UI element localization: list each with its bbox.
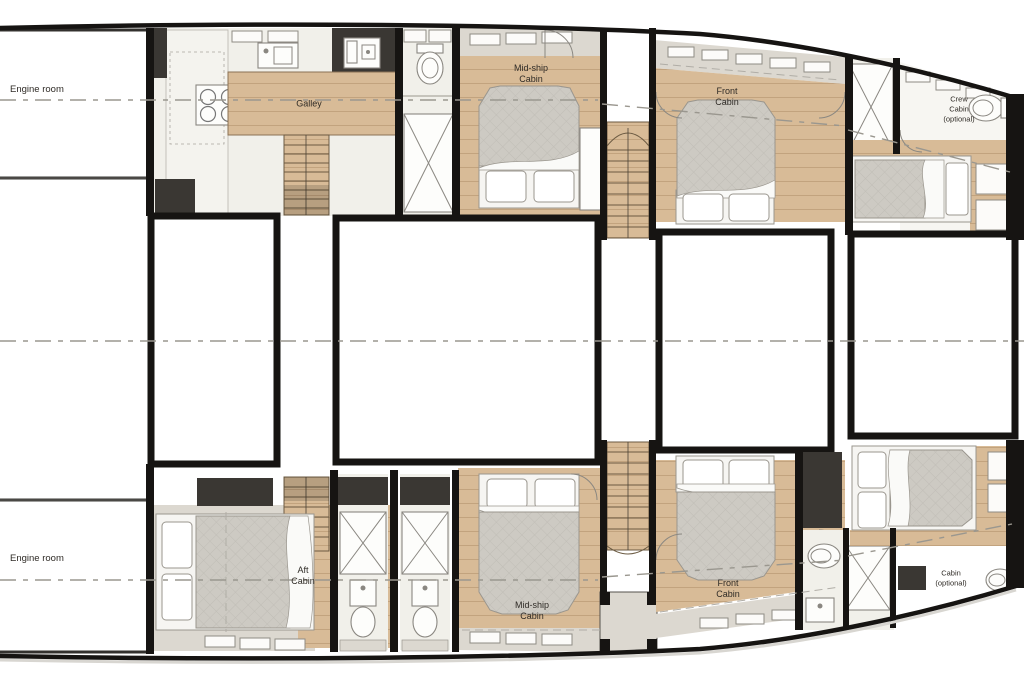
midship-cabin-port — [458, 28, 602, 216]
port-stairwell — [607, 122, 649, 238]
optional-cabin-vanity — [898, 566, 926, 590]
void-box-aft-port — [151, 216, 277, 464]
shower — [404, 114, 453, 212]
aft-bed — [156, 512, 314, 632]
midship-port-bathroom — [402, 28, 454, 216]
aft-bathroom — [338, 474, 388, 651]
toilet — [417, 44, 443, 84]
bow-port-area — [848, 58, 1016, 235]
floor-plan-drawing — [0, 0, 1024, 680]
midship-starboard-bed — [479, 474, 579, 614]
engine-room-starboard-outline — [0, 500, 148, 652]
midship-cabin-starboard — [458, 468, 602, 652]
bow-shower — [849, 64, 893, 150]
bridgedeck-voids — [151, 216, 1015, 464]
midship-starboard-bathroom — [400, 474, 450, 651]
floor-plan: Engine room Galley Mid-ship Cabin Front … — [0, 0, 1024, 680]
front-cabin-port — [654, 40, 845, 224]
front-starboard-wardrobe — [798, 452, 842, 528]
midship-port-bed — [479, 86, 579, 208]
midship-port-locker — [580, 128, 601, 210]
front-port-bed — [676, 100, 775, 224]
crew-bed — [851, 156, 971, 222]
optional-cabin-bed — [852, 446, 976, 530]
starboard-stairwell — [600, 442, 657, 652]
crew-toilet — [969, 95, 1010, 121]
galley-prep-sink — [258, 43, 298, 68]
galley-island — [228, 72, 397, 135]
void-box-bow — [851, 234, 1015, 436]
galley-stairs — [284, 135, 329, 215]
front-starboard-bed — [676, 456, 775, 580]
galley-sink — [344, 38, 380, 68]
void-box-center — [336, 218, 598, 462]
engine-room-port-outline — [0, 30, 148, 178]
bow-starboard-toilet — [808, 544, 840, 568]
